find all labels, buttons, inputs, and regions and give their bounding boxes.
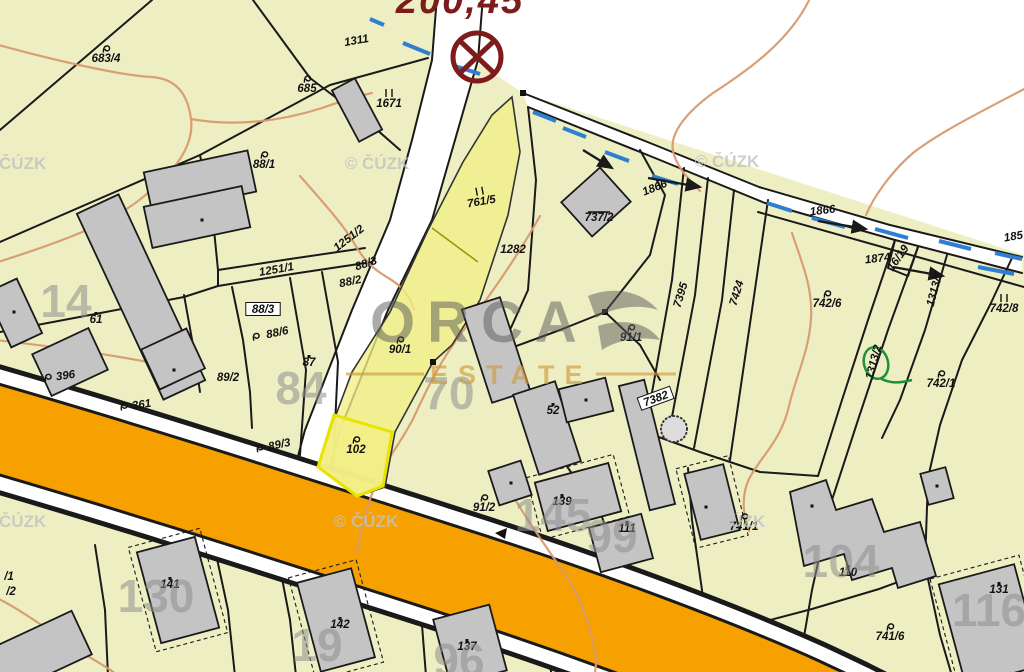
house-number: 130	[118, 570, 195, 622]
parcel-number: 88/1	[253, 159, 275, 171]
parcel-label: 89/2	[217, 372, 240, 384]
orca-tagline-text: ESTATE	[430, 360, 593, 390]
orca-logo-text: ORCA	[370, 290, 589, 355]
cuzk-watermark: © ČÚZK	[0, 512, 47, 531]
cadastral-map-viewport: 683/46851671131188/11251/21251/188/388/2…	[0, 0, 1024, 672]
parcel-number: 737/2	[585, 212, 614, 224]
parcel-number: 683/4	[92, 53, 121, 65]
house-number: 96	[433, 634, 484, 672]
parcel-number: 91/2	[473, 502, 496, 514]
cuzk-watermark: © ČÚZK	[334, 512, 399, 531]
measurement-text: 200,45	[395, 0, 524, 22]
parcel-number: /2	[5, 586, 16, 598]
orca-watermark: ORCA ESTATE	[346, 290, 676, 390]
parcel-number: 742/8	[990, 303, 1019, 315]
parcel-label: /2	[5, 586, 16, 598]
parcel-label: /1	[3, 571, 14, 583]
parcel-number: 742/1	[927, 378, 956, 390]
parcel-number: 1671	[376, 98, 402, 110]
house-number: 14	[40, 275, 92, 327]
house-number: 145	[515, 489, 592, 541]
parcel-number: /1	[3, 571, 14, 583]
house-number: 19	[291, 619, 342, 671]
house-number: 84	[275, 362, 327, 414]
parcel-number: 1282	[500, 244, 526, 256]
parcel-number: 52	[547, 405, 560, 417]
cuzk-watermark: © ČÚZK	[0, 154, 47, 173]
house-number: 99	[586, 510, 637, 562]
house-number: 116	[952, 584, 1024, 636]
parcel-number: 88/3	[252, 304, 275, 316]
parcel-label: 737/2	[585, 212, 614, 224]
parcel-number: 742/6	[813, 298, 842, 310]
parcel-label: 52	[547, 403, 560, 417]
parcel-number: 741/6	[876, 631, 905, 643]
cuzk-watermark: © ČÚZK	[345, 154, 410, 173]
house-number: 104	[803, 535, 880, 587]
parcel-label: 88/3	[246, 303, 280, 317]
parcel-number: 102	[346, 444, 366, 456]
cuzk-watermark: © ČÚZK	[701, 512, 766, 531]
cadastral-map: 683/46851671131188/11251/21251/188/388/2…	[0, 0, 1024, 672]
cuzk-watermark: © ČÚZK	[695, 152, 760, 171]
parcel-label: 1282	[500, 244, 526, 256]
parcel-number: 685	[297, 83, 317, 95]
ruin-symbol	[661, 416, 687, 442]
parcel-number: 89/2	[217, 372, 240, 384]
